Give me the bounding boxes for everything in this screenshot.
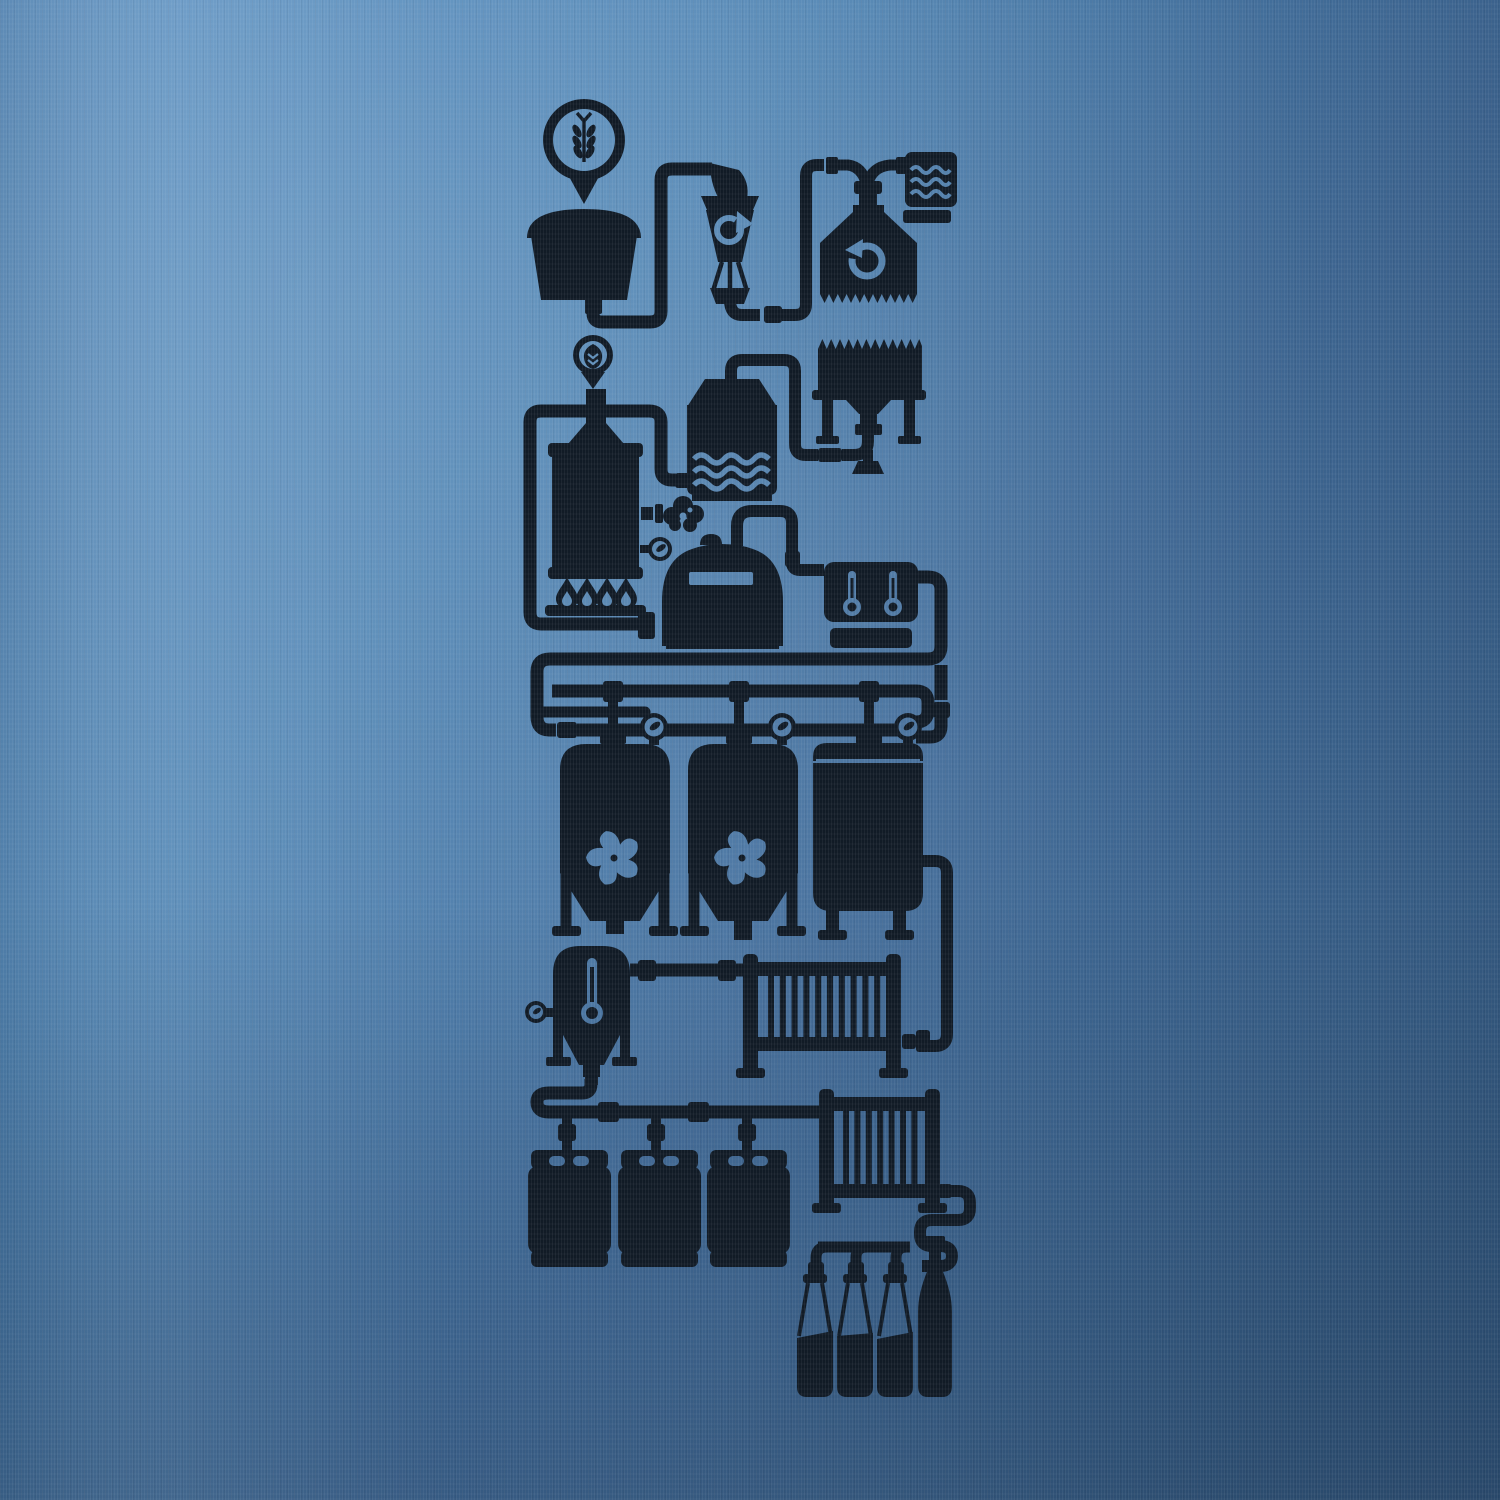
print-artwork (0, 0, 1500, 1500)
t-shirt-photo (0, 0, 1500, 1500)
brewing-process-print (0, 0, 1500, 1500)
